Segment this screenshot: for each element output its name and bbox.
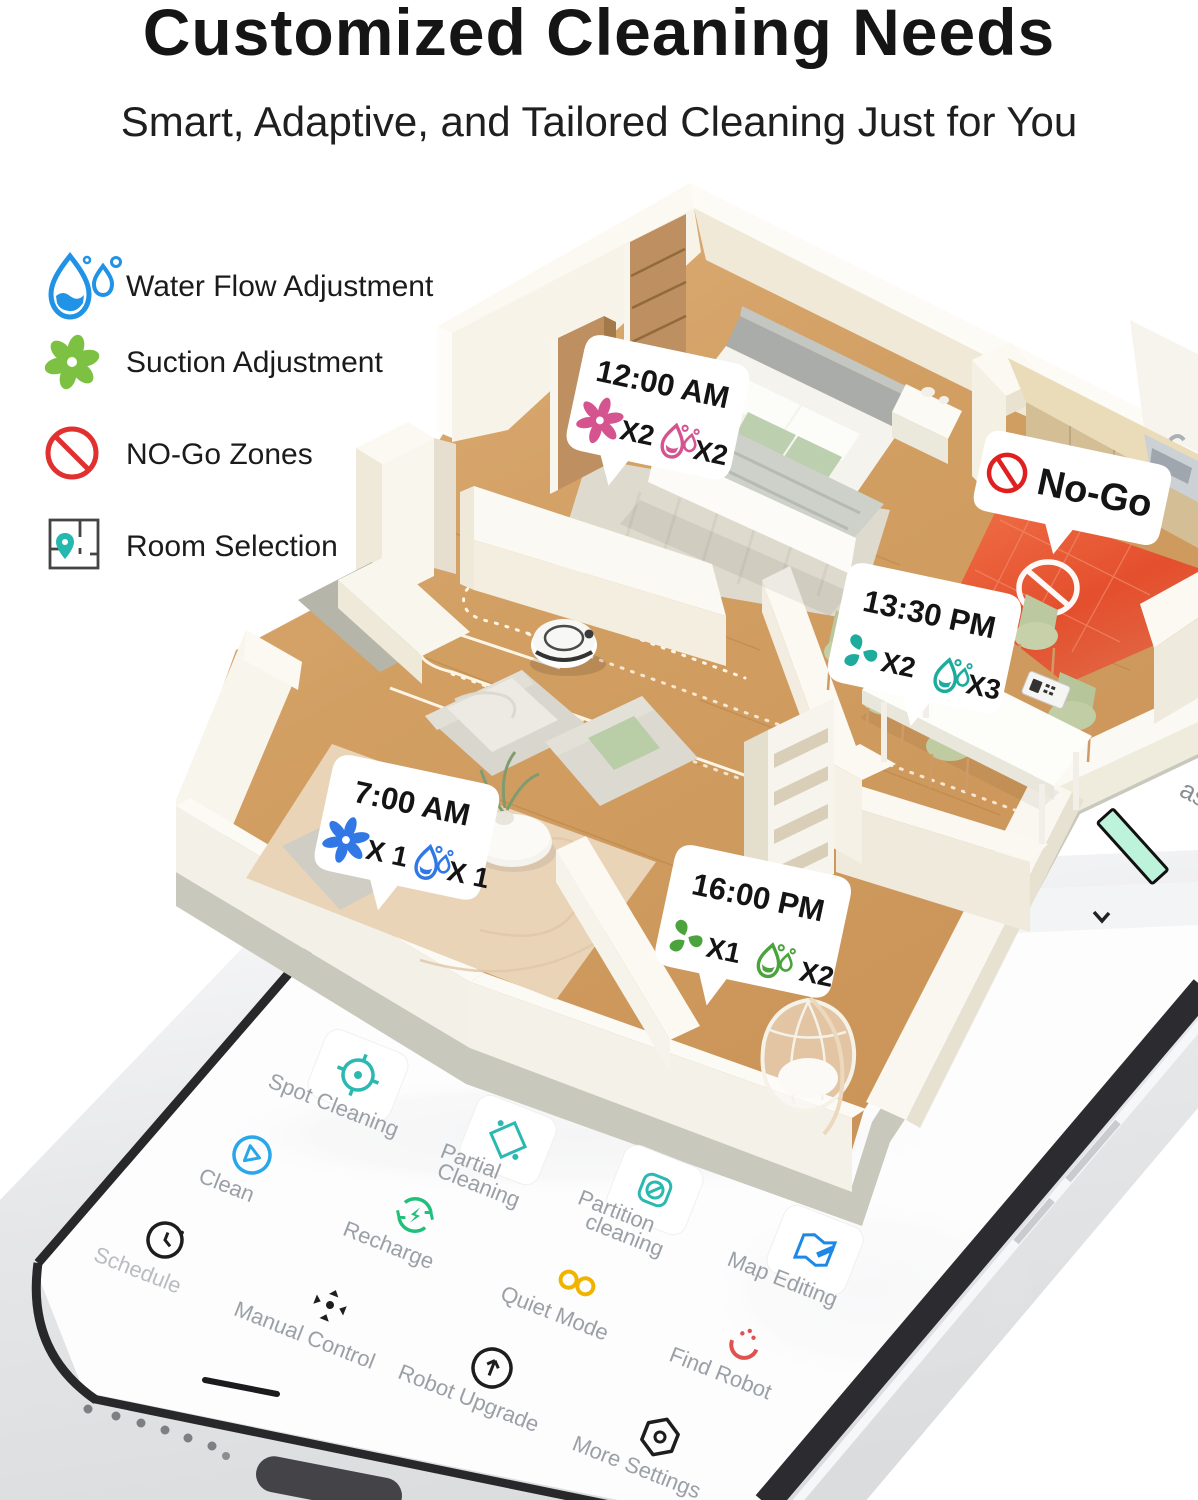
svg-text:Quiet Mode: Quiet Mode <box>497 1281 612 1346</box>
svg-text:Recharge: Recharge <box>340 1216 438 1274</box>
svg-text:Manual Control: Manual Control <box>231 1296 379 1374</box>
svg-text:More Settings: More Settings <box>569 1431 704 1500</box>
svg-text:Find Robot: Find Robot <box>666 1342 775 1405</box>
svg-text:Robot Upgrade: Robot Upgrade <box>395 1359 543 1437</box>
svg-text:Schedule: Schedule <box>90 1242 185 1299</box>
svg-text:Clean: Clean <box>195 1163 258 1207</box>
